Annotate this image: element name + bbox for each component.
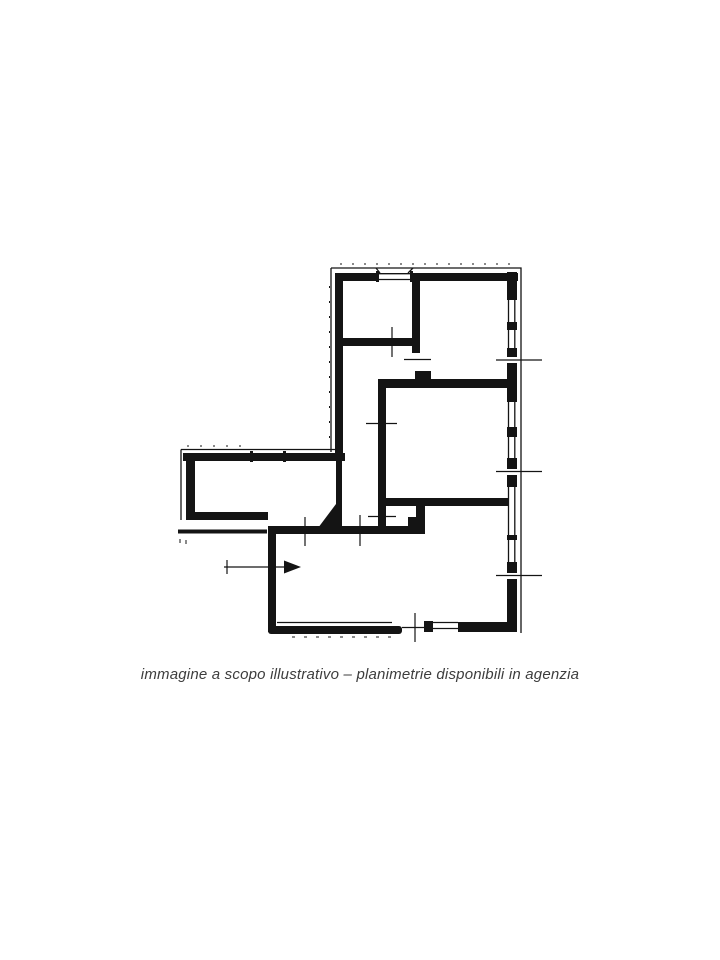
exterior-outline [178, 268, 521, 633]
page: immagine a scopo illustrativo – planimet… [0, 0, 720, 960]
stair-triangle [318, 504, 339, 528]
floor-plan-image [0, 0, 720, 960]
entrance-arrow-icon [224, 560, 301, 574]
exterior-walls [183, 272, 518, 634]
interior-walls [268, 273, 517, 623]
hatch-marks [180, 264, 516, 637]
caption: immagine a scopo illustrativo – planimet… [0, 666, 720, 683]
floor-plan-svg [0, 0, 720, 960]
